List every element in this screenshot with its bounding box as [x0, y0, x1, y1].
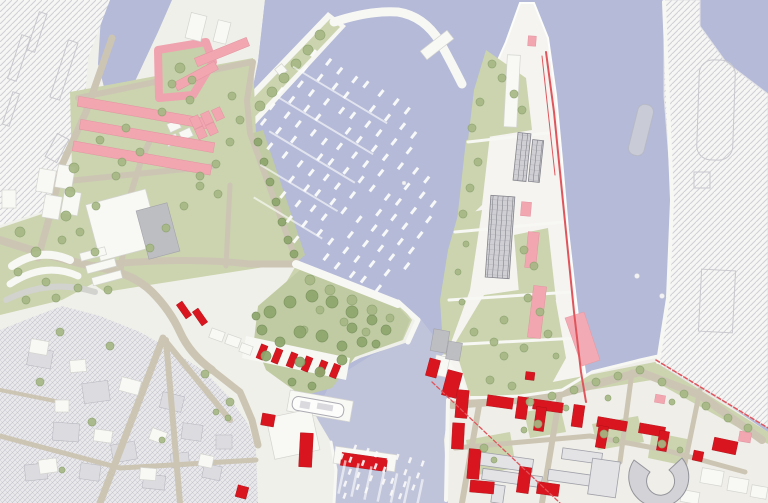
- masterplan-canvas[interactable]: [0, 0, 768, 503]
- masterplan-map[interactable]: [0, 0, 768, 503]
- map-layers: [0, 0, 768, 503]
